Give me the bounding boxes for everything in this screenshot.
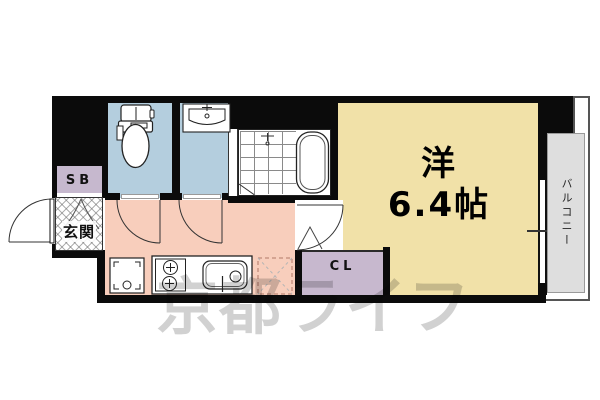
toilet-door-threshold: [121, 194, 159, 199]
main-room-name: 洋: [338, 144, 540, 185]
watermark-text: 京都ライフ: [156, 256, 471, 346]
wall-kitchen-top-b: [160, 193, 182, 200]
entrance: 玄関: [55, 197, 103, 251]
balcony-rail-right: [588, 96, 590, 301]
balcony-rail-top: [573, 96, 590, 98]
entrance-door-swing: [9, 199, 54, 243]
wall-kitchen-top-c: [222, 193, 228, 200]
wall-toilet-divider: [172, 96, 180, 198]
wall-kitchen-top-a: [105, 193, 120, 200]
passage-floor: [295, 200, 343, 250]
toilet-room: [108, 103, 172, 198]
washroom-door-threshold: [183, 194, 221, 199]
balcony-label: バルコニー: [558, 178, 574, 248]
main-room-label: 洋 6.4帖: [338, 144, 540, 226]
balcony: バルコニー: [547, 133, 585, 293]
floorplan-stage: バルコニー SB 玄関 CL: [0, 0, 600, 400]
bathroom-tile-floor: [240, 131, 296, 194]
wall-above-bathroom: [228, 96, 338, 129]
wall-right-stub: [538, 283, 547, 295]
entrance-label: 玄関: [62, 221, 96, 242]
washroom: [180, 103, 228, 198]
shoe-box: SB: [57, 166, 102, 194]
balcony-rail-bottom: [546, 299, 590, 301]
wall-bathroom-right: [331, 123, 338, 203]
shoe-box-label: SB: [66, 173, 93, 188]
balcony-rail-left: [573, 96, 575, 133]
window-center-tick: [527, 230, 549, 232]
main-room-size: 6.4帖: [338, 185, 540, 226]
